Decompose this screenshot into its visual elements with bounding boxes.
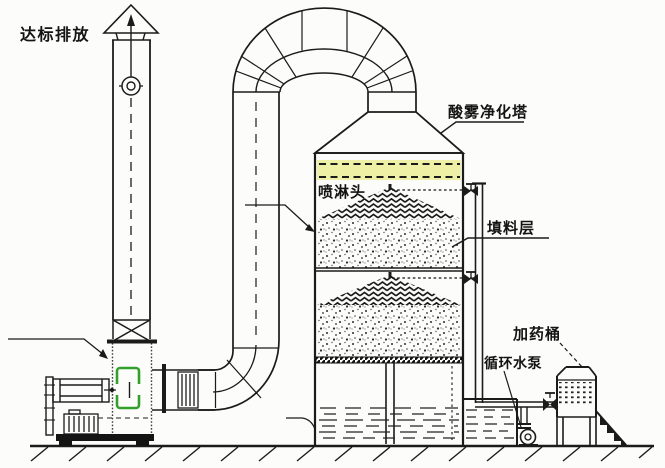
label-circulating-pump: 循环水泵 <box>484 355 542 372</box>
diagram-canvas: 达标排放 酸雾净化塔 喷淋头 填料层 加药桶 循环水泵 <box>0 0 665 468</box>
side-tank <box>463 399 517 446</box>
sump-water <box>319 408 459 438</box>
fan-base-frame <box>56 434 154 446</box>
barrel-steps <box>596 411 628 446</box>
exhaust-stack <box>104 5 158 342</box>
label-purification-tower: 酸雾净化塔 <box>448 103 528 121</box>
spray-header-2 <box>317 272 475 305</box>
packing-layer-2 <box>317 305 461 357</box>
packing-support-grid <box>316 357 462 363</box>
ground-hatch-marks <box>31 447 652 461</box>
ground <box>30 446 654 461</box>
demister-layer <box>317 160 461 180</box>
fan-motor <box>64 410 98 434</box>
packing-layer-1 <box>317 219 461 268</box>
annotation-leaders <box>8 122 583 427</box>
stack-transition <box>113 320 150 341</box>
side-tank-water <box>466 410 514 438</box>
bearing-housing <box>53 379 109 402</box>
fan-impeller-highlight <box>114 368 142 408</box>
sampling-port-icon <box>119 77 143 95</box>
barrel-stand <box>557 417 596 445</box>
dosing-barrel <box>557 367 628 446</box>
label-packing-layer: 填料层 <box>487 219 535 237</box>
label-dosing-barrel: 加药桶 <box>512 325 561 343</box>
flexible-connector <box>178 372 198 408</box>
label-spray-head: 喷淋头 <box>318 183 366 201</box>
process-diagram: 达标排放 酸雾净化塔 喷淋头 填料层 加药桶 循环水泵 <box>0 0 665 468</box>
fan-blower <box>44 343 154 446</box>
flow-up-arrow-icon <box>127 14 135 77</box>
fan-inlet-duct <box>152 364 215 413</box>
label-emission-outlet: 达标排放 <box>20 25 90 44</box>
spray-cone-icon <box>317 275 461 305</box>
diagram-labels: 达标排放 酸雾净化塔 喷淋头 填料层 加药桶 循环水泵 <box>20 25 561 372</box>
purification-tower <box>286 112 475 446</box>
spray-riser-pipe <box>463 184 486 404</box>
barrel-liquid <box>559 382 594 406</box>
